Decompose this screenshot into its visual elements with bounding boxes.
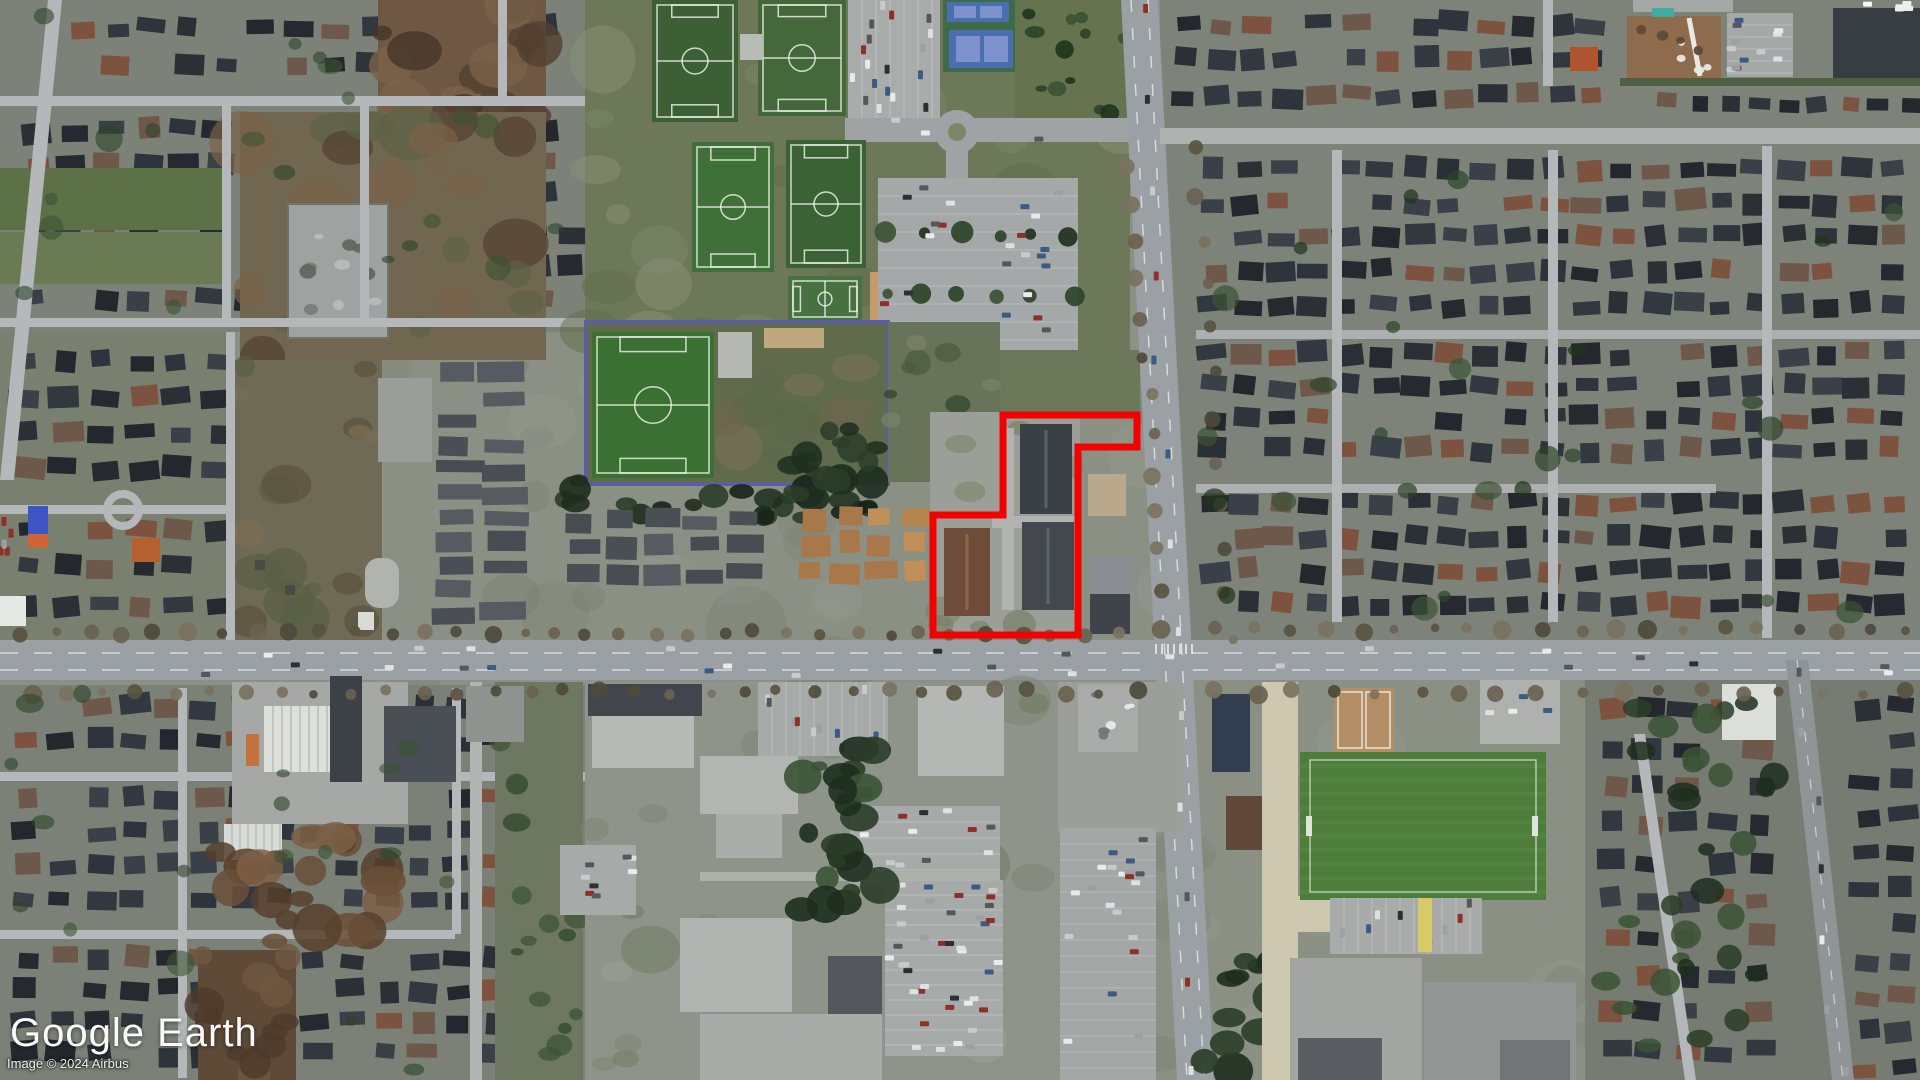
- google-earth-viewport[interactable]: Google Earth Image © 2024 Airbus: [0, 0, 1920, 1080]
- satellite-canvas: [0, 0, 1920, 1080]
- imagery-copyright: Image © 2024 Airbus: [7, 1056, 129, 1071]
- google-earth-watermark: Google Earth: [10, 1011, 258, 1056]
